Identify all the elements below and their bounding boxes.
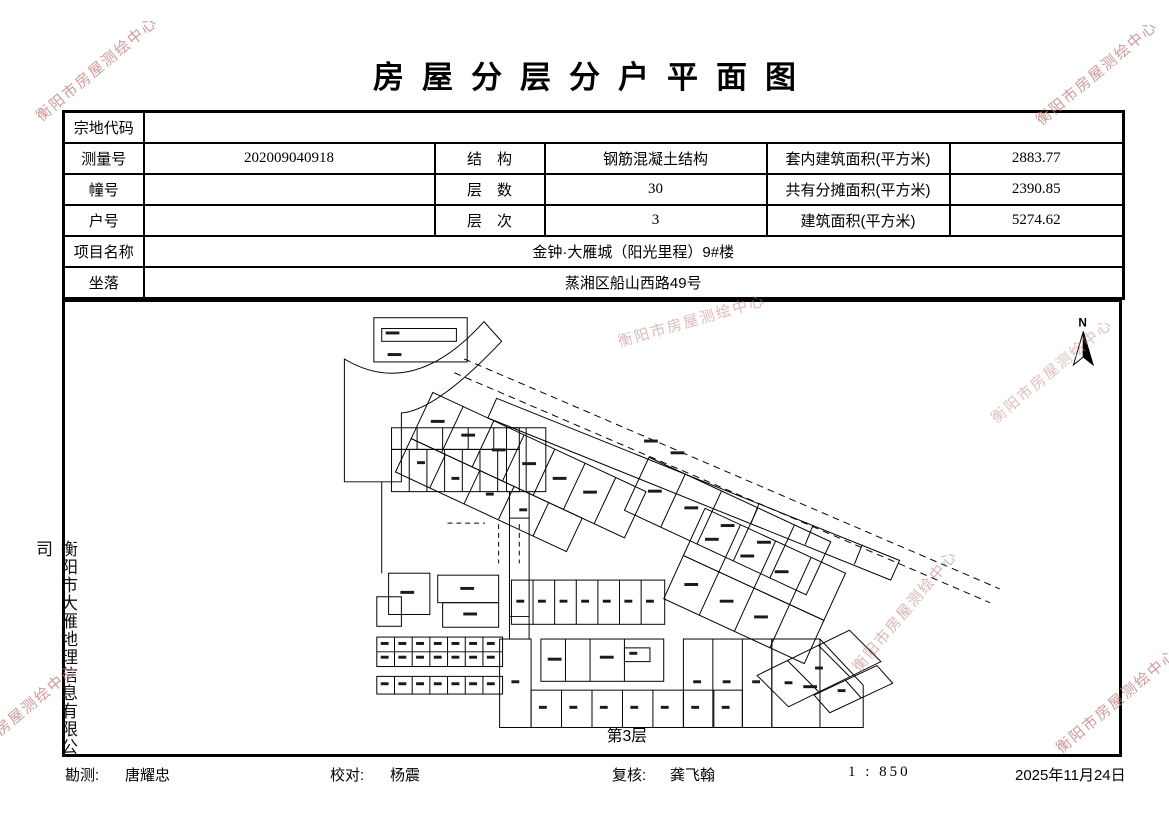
survey-name: 唐耀忠 xyxy=(125,764,170,785)
info-table: 宗地代码 测量号 202009040918 结 构 钢筋混凝土结构 套内建筑面积… xyxy=(62,110,1125,300)
total-area-value: 5274.62 xyxy=(950,205,1124,236)
unit-no-label: 户号 xyxy=(64,205,144,236)
shared-area-label: 共有分摊面积(平方米) xyxy=(767,174,950,205)
inner-area-value: 2883.77 xyxy=(950,143,1124,174)
total-area-label: 建筑面积(平方米) xyxy=(767,205,950,236)
page-title: 房屋分层分户平面图 xyxy=(0,52,1169,97)
table-row: 宗地代码 xyxy=(64,112,1124,144)
unit-no-value xyxy=(144,205,435,236)
level-label: 层 次 xyxy=(435,205,545,236)
shared-area-value: 2390.85 xyxy=(950,174,1124,205)
location-value: 蒸湘区船山西路49号 xyxy=(144,267,1124,299)
check-label: 校对: xyxy=(330,764,364,785)
north-arrow-icon: N xyxy=(1073,317,1093,365)
location-label: 坐落 xyxy=(64,267,144,299)
table-row: 项目名称 金钟·大雁城（阳光里程）9#楼 xyxy=(64,236,1124,267)
structure-value: 钢筋混凝土结构 xyxy=(545,143,767,174)
inner-area-label: 套内建筑面积(平方米) xyxy=(767,143,950,174)
project-name-label: 项目名称 xyxy=(64,236,144,267)
company-name-vertical: 衡阳市大雁地理信息有限公司 xyxy=(30,540,80,770)
floors-label: 层 数 xyxy=(435,174,545,205)
structure-label: 结 构 xyxy=(435,143,545,174)
floor-plan-area: N 第3层 xyxy=(62,299,1122,757)
footer: 勘测: 唐耀忠 校对: 杨震 复核: 龚飞翰 1 : 850 2025年11月2… xyxy=(0,760,1169,790)
survey-no-label: 测量号 xyxy=(64,143,144,174)
table-row: 坐落 蒸湘区船山西路49号 xyxy=(64,267,1124,299)
review-name: 龚飞翰 xyxy=(670,764,715,785)
north-label: N xyxy=(1078,317,1087,330)
building-no-label: 幢号 xyxy=(64,174,144,205)
check-name: 杨震 xyxy=(390,764,420,785)
floors-value: 30 xyxy=(545,174,767,205)
document-page: { "title": "房屋分层分户平面图", "watermark": { "… xyxy=(0,0,1169,827)
table-row: 测量号 202009040918 结 构 钢筋混凝土结构 套内建筑面积(平方米)… xyxy=(64,143,1124,174)
level-value: 3 xyxy=(545,205,767,236)
building-no-value xyxy=(144,174,435,205)
survey-label: 勘测: xyxy=(65,764,99,785)
map-scale: 1 : 850 xyxy=(848,764,911,781)
floor-label: 第3层 xyxy=(607,727,647,745)
date: 2025年11月24日 xyxy=(1015,764,1126,785)
table-row: 幢号 层 数 30 共有分摊面积(平方米) 2390.85 xyxy=(64,174,1124,205)
survey-no-value: 202009040918 xyxy=(144,143,435,174)
parcel-code-label: 宗地代码 xyxy=(64,112,144,144)
table-row: 户号 层 次 3 建筑面积(平方米) 5274.62 xyxy=(64,205,1124,236)
floor-plan-drawing: N 第3层 xyxy=(65,302,1119,754)
review-label: 复核: xyxy=(612,764,646,785)
parcel-code-value xyxy=(144,112,1124,144)
project-name-value: 金钟·大雁城（阳光里程）9#楼 xyxy=(144,236,1124,267)
